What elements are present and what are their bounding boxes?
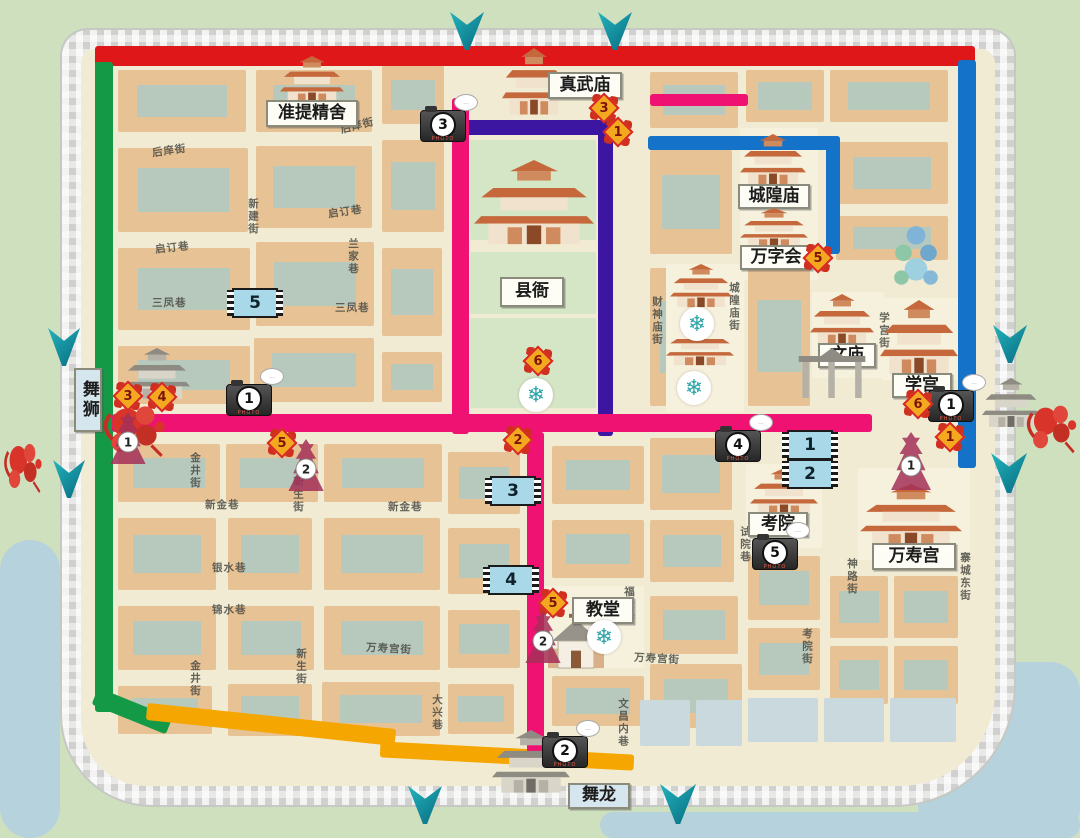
- route-segment-purple: [598, 120, 613, 436]
- landmark-building-xianya: [474, 160, 594, 246]
- lantern-marker-icon: 1: [603, 117, 633, 147]
- speech-bubble-icon: ...: [749, 414, 773, 431]
- street-name: 财神庙街: [650, 296, 665, 346]
- lantern-marker-icon: 5: [803, 243, 833, 273]
- old-town-tour-map: 后庠街后庠街新建街启订巷启订巷兰家巷三凤巷三凤巷金井街金井街新生街新生街新金巷新…: [0, 0, 1080, 838]
- film-marker-icon: 1: [787, 430, 833, 460]
- camera-photo-text: PHOTO: [543, 762, 587, 768]
- lantern-number: 6: [523, 346, 553, 376]
- landmark-building-chenghuang: [740, 134, 806, 186]
- block-roof: [904, 660, 949, 690]
- street-name: 寨城东街: [958, 552, 973, 602]
- camera-viewfinder: [425, 106, 437, 112]
- lantern-number: 3: [113, 381, 143, 411]
- block-roof: [137, 85, 227, 117]
- camera-number: 4: [725, 432, 751, 458]
- pagoda-number: 2: [296, 459, 317, 480]
- street-name: 兰家巷: [346, 238, 361, 276]
- arch-building-icon: [795, 348, 869, 398]
- camera-number: 3: [430, 112, 456, 138]
- block-roof: [138, 168, 229, 212]
- camera-photo-text: PHOTO: [421, 136, 465, 142]
- city-block: [748, 698, 818, 742]
- city-block: [324, 518, 440, 590]
- block-roof: [853, 157, 931, 189]
- city-block: [640, 700, 690, 746]
- block-roof: [340, 695, 423, 723]
- city-block: [824, 698, 884, 742]
- lantern-marker-icon: 3: [113, 381, 143, 411]
- block-roof: [758, 82, 813, 109]
- street-name: 金井街: [188, 660, 203, 698]
- block-roof: [848, 82, 931, 109]
- block-roof: [342, 458, 425, 488]
- landmark-building-wanzihui: [740, 208, 808, 248]
- city-block: [894, 646, 958, 704]
- city-block: [650, 150, 732, 254]
- landmark-building-wanzihui-icon: [740, 208, 808, 248]
- block-roof: [391, 162, 434, 210]
- block-roof: [133, 535, 202, 572]
- block-roof: [133, 621, 202, 654]
- snowflake-marker-icon: ❄: [587, 620, 621, 654]
- pagoda-marker-icon: 2: [284, 439, 328, 491]
- city-block: [890, 698, 956, 742]
- block-roof: [662, 455, 719, 492]
- snowflake-marker-icon: ❄: [519, 378, 553, 412]
- route-segment-pink: [452, 98, 469, 434]
- block-roof: [391, 364, 433, 390]
- city-block: [382, 352, 442, 402]
- city-block: [448, 684, 514, 734]
- camera-marker-icon: 1PHOTO: [928, 390, 974, 422]
- fountain-building-icon: [890, 222, 942, 294]
- camera-viewfinder: [720, 426, 732, 432]
- block-roof: [566, 460, 630, 490]
- camera-number: 5: [762, 540, 788, 566]
- camera-marker-icon: 5PHOTO: [752, 538, 798, 570]
- city-block: [118, 148, 248, 232]
- camera-number: 2: [552, 738, 578, 764]
- lantern-number: 6: [903, 389, 933, 419]
- camera-viewfinder: [231, 380, 243, 386]
- city-block: [118, 70, 246, 132]
- lantern-marker-icon: 6: [523, 346, 553, 376]
- street-name: 神路街: [845, 558, 860, 596]
- landmark-building-wenmiao: [810, 294, 874, 346]
- film-marker-icon: 4: [488, 565, 534, 595]
- city-block: [382, 140, 444, 232]
- city-block: [650, 596, 738, 654]
- landmark-building-zhunti: [280, 56, 344, 104]
- landmark-label-xianya: 县衙: [500, 277, 564, 307]
- city-block: [118, 248, 250, 330]
- snowflake-marker-icon: ❄: [680, 307, 714, 341]
- landmark-building-wanshou: [860, 484, 962, 548]
- lantern-number: 1: [935, 422, 965, 452]
- speech-bubble-icon: ...: [962, 374, 986, 391]
- street-name: 三凤巷: [152, 295, 187, 310]
- street-name: 金井街: [188, 452, 203, 490]
- lantern-number: 5: [803, 243, 833, 273]
- city-block: [448, 610, 520, 668]
- city-block: [746, 70, 824, 122]
- street-name: 锦水巷: [212, 602, 247, 617]
- speech-bubble-icon: ...: [786, 522, 810, 539]
- speech-bubble-icon: ...: [454, 94, 478, 111]
- lantern-marker-icon: 6: [903, 389, 933, 419]
- landmark-building-xuegong: [880, 300, 958, 376]
- speech-bubble-icon: ...: [576, 720, 600, 737]
- city-block: [830, 70, 948, 122]
- lantern-marker-icon: 2: [503, 425, 533, 455]
- temple-building: [670, 264, 732, 308]
- speech-bubble-icon: ...: [260, 368, 284, 385]
- water-area: [0, 540, 60, 838]
- lantern-number: 2: [503, 425, 533, 455]
- camera-marker-icon: 3PHOTO: [420, 110, 466, 142]
- city-block: [836, 142, 948, 204]
- lantern-number: 4: [147, 382, 177, 412]
- camera-photo-text: PHOTO: [227, 410, 271, 416]
- landmark-building-chenghuang-icon: [740, 134, 806, 186]
- pagoda-marker-icon: 1: [886, 432, 936, 490]
- landmark-label-zhunti: 准提精舍: [266, 100, 358, 127]
- city-block: [324, 444, 442, 502]
- street-name: 大兴巷: [430, 694, 445, 732]
- camera-photo-text: PHOTO: [716, 456, 760, 462]
- street-name: 文昌内巷: [616, 698, 631, 748]
- snowflake-marker-icon: ❄: [677, 371, 711, 405]
- block-roof: [458, 696, 504, 722]
- lion-dance-icon: [1024, 396, 1080, 458]
- film-marker-icon: 5: [232, 288, 278, 318]
- city-block: [894, 576, 958, 638]
- block-roof: [391, 269, 433, 315]
- performance-label-wushi: 舞狮: [74, 368, 102, 432]
- block-roof: [241, 621, 301, 654]
- block-roof: [663, 610, 725, 640]
- landmark-building-xianya-icon: [474, 160, 594, 246]
- fountain-building: [890, 222, 942, 294]
- city-block: [324, 606, 440, 670]
- landmark-building-zhunti-icon: [280, 56, 344, 104]
- film-marker-icon: 3: [490, 476, 536, 506]
- camera-viewfinder: [757, 534, 769, 540]
- route-segment-pink: [650, 94, 748, 106]
- street-name: 万寿宫街: [366, 640, 413, 657]
- lantern-marker-icon: 4: [147, 382, 177, 412]
- street-name: 三凤巷: [335, 300, 370, 315]
- temple-building-icon: [670, 264, 732, 308]
- city-block: [696, 700, 742, 746]
- city-block: [552, 446, 644, 504]
- landmark-label-wanshou: 万寿宫: [872, 543, 956, 570]
- pagoda-number: 2: [533, 631, 554, 652]
- camera-marker-icon: 4PHOTO: [715, 430, 761, 462]
- landmark-label-chenghuang: 城隍庙: [738, 184, 810, 209]
- street-name: 考院街: [800, 628, 815, 666]
- pagoda-marker-icon: 1: [106, 412, 150, 464]
- block-roof: [662, 175, 719, 229]
- street-name: 新金巷: [388, 499, 423, 514]
- pagoda-marker-icon: 2: [521, 611, 565, 663]
- city-block: [382, 248, 442, 336]
- camera-photo-text: PHOTO: [753, 564, 797, 570]
- block-roof: [839, 660, 880, 690]
- city-block: [650, 520, 734, 582]
- camera-marker-icon: 2PHOTO: [542, 736, 588, 768]
- city-block: [830, 646, 888, 704]
- arch-building: [795, 348, 869, 398]
- camera-viewfinder: [933, 386, 945, 392]
- lantern-marker-icon: 1: [935, 422, 965, 452]
- camera-number: 1: [938, 392, 964, 418]
- street-name: 新金巷: [205, 497, 240, 512]
- block-roof: [241, 535, 300, 572]
- block-roof: [272, 353, 356, 386]
- camera-number: 1: [236, 386, 262, 412]
- block-roof: [663, 535, 722, 567]
- water-area: [600, 812, 1080, 838]
- pagoda-number: 1: [901, 455, 922, 476]
- city-block: [118, 518, 216, 590]
- block-roof: [459, 624, 509, 654]
- city-block: [552, 520, 644, 578]
- landmark-building-xuegong-icon: [880, 300, 958, 376]
- lantern-number: 1: [603, 117, 633, 147]
- street-name: 银水巷: [212, 560, 247, 575]
- performance-label-wulong: 舞龙: [568, 783, 630, 809]
- block-roof: [904, 591, 949, 623]
- city-block: [228, 518, 312, 590]
- camera-viewfinder: [547, 732, 559, 738]
- street-name: 万寿宫街: [634, 650, 681, 667]
- block-roof: [566, 534, 630, 564]
- street-name: 新建街: [246, 198, 261, 236]
- block-roof: [273, 166, 354, 209]
- film-marker-icon: 2: [787, 459, 833, 489]
- route-segment-blue: [826, 136, 840, 254]
- block-roof: [839, 591, 880, 623]
- lion-dance-icon: [2, 434, 46, 498]
- pagoda-number: 1: [118, 432, 139, 453]
- landmark-building-wanshou-icon: [860, 484, 962, 548]
- block-roof: [341, 535, 422, 572]
- street-name: 新生街: [294, 648, 309, 686]
- camera-marker-icon: 1PHOTO: [226, 384, 272, 416]
- block-roof: [759, 571, 809, 604]
- landmark-building-wenmiao-icon: [810, 294, 874, 346]
